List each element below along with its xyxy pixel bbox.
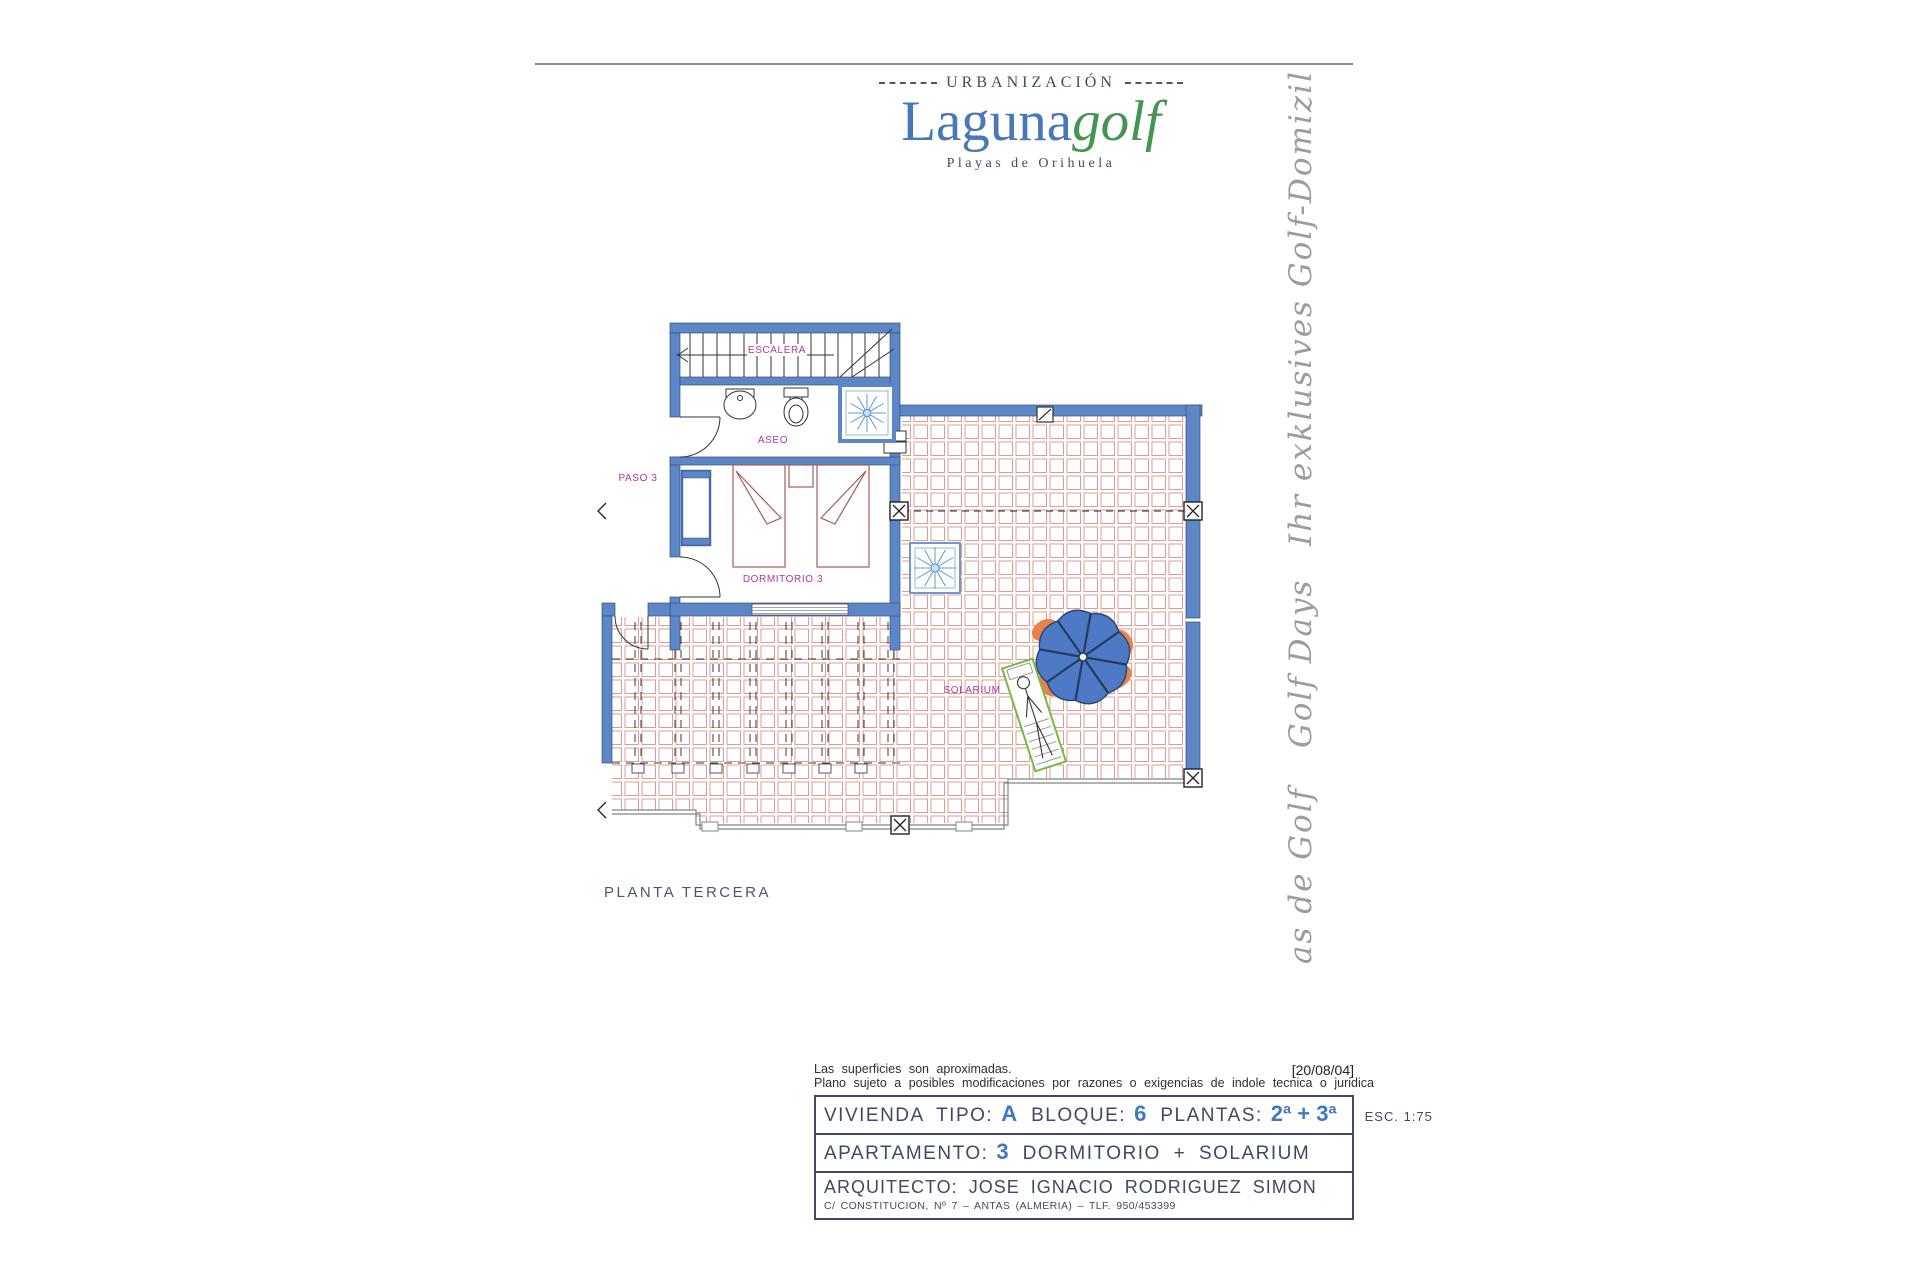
row-vivienda: VIVIENDA TIPO: A BLOQUE: 6 PLANTAS: 2ª +… bbox=[816, 1097, 1352, 1133]
title-block: [20/08/04] Las superficies son aproximad… bbox=[814, 1062, 1354, 1220]
plan-caption: PLANTA TERCERA bbox=[604, 884, 771, 901]
dash-rule-left bbox=[879, 82, 937, 84]
diagonal-marker bbox=[1037, 407, 1053, 422]
paso-label: PASO 3 bbox=[619, 473, 658, 484]
bloque-value: 6 bbox=[1134, 1101, 1146, 1127]
aseo-label: ASEO bbox=[758, 435, 788, 446]
side-text-golf-days: Golf Days bbox=[1283, 584, 1351, 748]
closet bbox=[682, 471, 710, 545]
toilet bbox=[784, 388, 808, 426]
row-arquitecto: ARQUITECTO: JOSE IGNACIO RODRIGUEZ SIMON… bbox=[816, 1171, 1352, 1218]
note-line-2: Plano sujeto a posibles modificaciones p… bbox=[814, 1076, 1354, 1090]
apartamento-label: APARTAMENTO: bbox=[824, 1143, 988, 1165]
scale-label: ESC. 1:75 bbox=[1365, 1109, 1433, 1124]
brand-laguna: Laguna bbox=[901, 90, 1072, 153]
row-apartamento: APARTAMENTO: 3 DORMITORIO + SOLARIUM bbox=[816, 1133, 1352, 1171]
date-stamp: [20/08/04] bbox=[1292, 1062, 1354, 1078]
floorplan-drawing: ESCALERA ASEO PASO 3 DORMITORIO bbox=[590, 305, 1230, 885]
solarium-shower-tile bbox=[910, 543, 960, 593]
column-bases bbox=[702, 822, 972, 831]
plantas-label: PLANTAS: bbox=[1160, 1105, 1262, 1127]
brand-subtitle: Playas de Orihuela bbox=[878, 156, 1184, 172]
lagunagolf-logo: URBANIZACIÓN Lagunagolf Playas de Orihue… bbox=[878, 74, 1184, 172]
note-line-1: Las superficies son aproximadas. bbox=[814, 1062, 1354, 1076]
side-text-as-de-golf: as de Golf bbox=[1283, 774, 1351, 964]
shower-tray bbox=[840, 385, 894, 441]
apartamento-text: DORMITORIO + SOLARIUM bbox=[1023, 1143, 1311, 1165]
apartamento-value: 3 bbox=[996, 1139, 1008, 1165]
solarium-label: SOLARIUM bbox=[943, 685, 1000, 696]
arquitecto-address: C/ CONSTITUCION, Nº 7 – ANTAS (ALMERIA) … bbox=[824, 1200, 1344, 1212]
plantas-value: 2ª + 3ª bbox=[1271, 1101, 1337, 1127]
vivienda-label: VIVIENDA TIPO: bbox=[824, 1105, 993, 1127]
escalera-label: ESCALERA bbox=[748, 345, 806, 356]
dormitorio-label: DORMITORIO 3 bbox=[743, 574, 823, 585]
twin-beds bbox=[733, 465, 869, 567]
side-text-golf-domizil: Ihr exklusives Golf-Domizil bbox=[1283, 88, 1351, 546]
vivienda-value: A bbox=[1001, 1101, 1017, 1127]
bedroom-window bbox=[752, 604, 848, 615]
header-rule bbox=[535, 63, 1353, 65]
sink bbox=[724, 389, 756, 419]
scanned-floorplan-page: { "header": { "urbanizacion": "URBANIZAC… bbox=[0, 0, 1920, 1280]
title-table: VIVIENDA TIPO: A BLOQUE: 6 PLANTAS: 2ª +… bbox=[814, 1095, 1354, 1220]
dash-rule-right bbox=[1125, 82, 1183, 84]
brand-wordmark: Lagunagolf bbox=[878, 93, 1184, 151]
brand-golf: golf bbox=[1072, 90, 1161, 153]
bloque-label: BLOQUE: bbox=[1031, 1105, 1126, 1127]
arquitecto-line: ARQUITECTO: JOSE IGNACIO RODRIGUEZ SIMON bbox=[824, 1177, 1344, 1198]
